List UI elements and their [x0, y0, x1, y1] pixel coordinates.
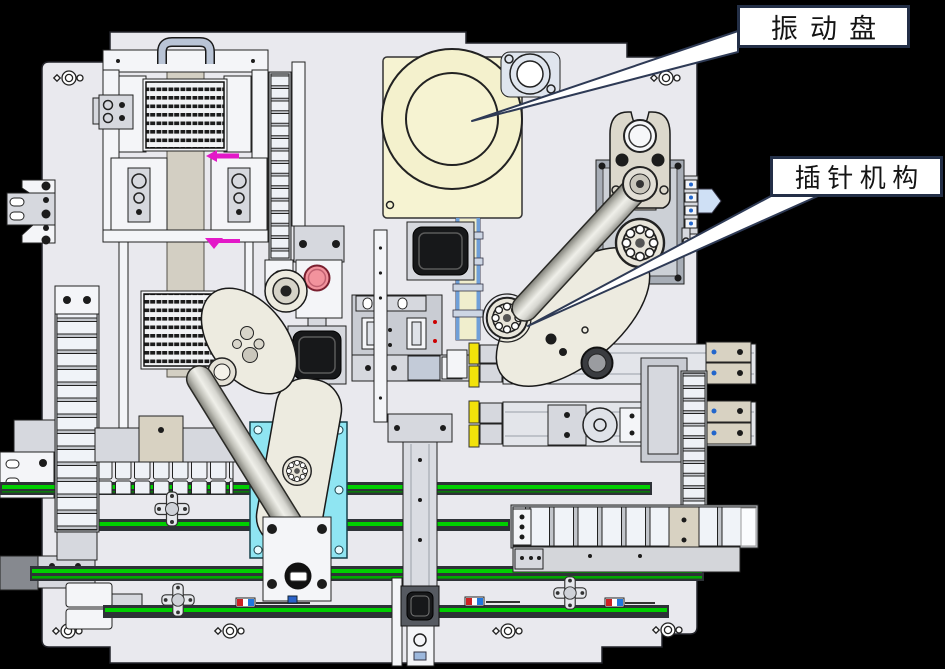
tray-upper	[143, 79, 227, 151]
cable-chain-gantry	[265, 72, 293, 290]
stopper-yellow	[469, 343, 479, 364]
callout-vibratory-bowl-label: 振动盘	[759, 7, 889, 46]
left-fixture-bracket-top	[7, 180, 55, 245]
machine-layout-diagram: 振动盘 插针机构	[0, 0, 945, 669]
pallet-conveyor-center	[511, 505, 758, 572]
rotary-disc	[583, 408, 617, 442]
rail-carriage	[706, 342, 751, 384]
linear-guide-vertical	[374, 230, 387, 422]
callout-pin-mechanism: 插针机构	[770, 156, 943, 197]
frame-rail-vertical	[292, 62, 305, 226]
stopper-yellow	[469, 366, 479, 387]
stopper-yellow	[469, 425, 479, 447]
robot-joint-flower	[283, 457, 312, 486]
callout-pin-mechanism-label: 插针机构	[788, 158, 925, 195]
cable-chain-left	[55, 286, 99, 560]
conveyor-line-4	[103, 605, 669, 618]
gantry-carriage-left	[111, 158, 167, 232]
fixture-plate-center	[352, 295, 442, 357]
callout-vibratory-bowl: 振动盘	[737, 5, 910, 48]
stopper-yellow	[469, 401, 479, 423]
gantry-carriage-right	[211, 158, 267, 232]
heatsink-block-1	[407, 222, 474, 280]
flow-arrow-icon	[698, 189, 721, 213]
feed-rail-lower	[469, 401, 756, 447]
bearing-flange	[501, 52, 560, 97]
rail-carriage	[706, 401, 751, 444]
